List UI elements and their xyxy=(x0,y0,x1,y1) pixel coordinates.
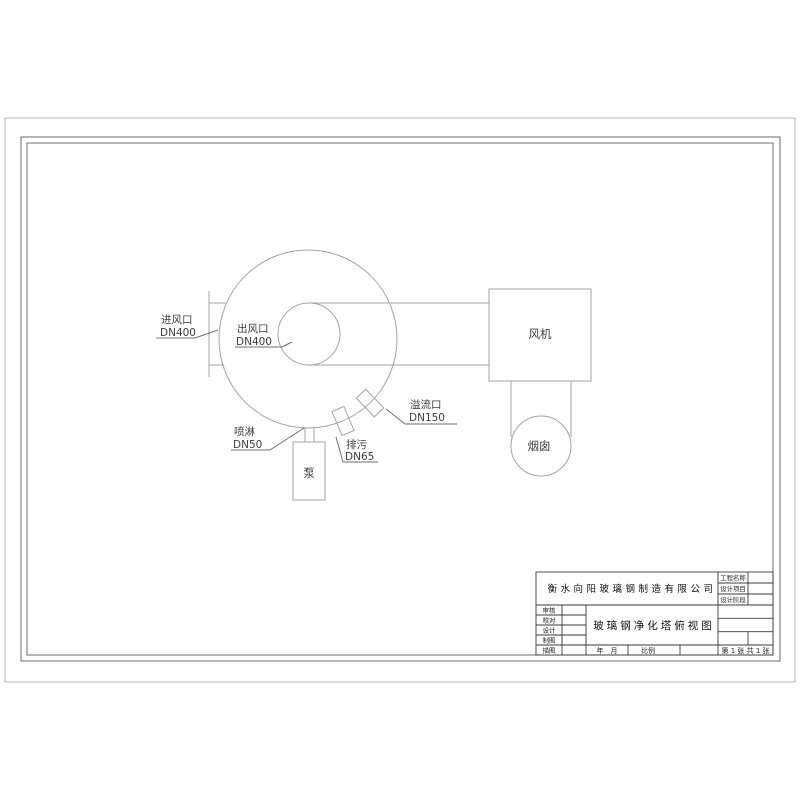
outlet-size-label: DN400 xyxy=(236,336,272,348)
chimney-label: 烟囱 xyxy=(528,439,551,453)
inlet-label: 进风口 xyxy=(161,314,193,326)
spray-size-label: DN50 xyxy=(233,439,262,451)
field-design-item: 设计项目 xyxy=(720,584,746,593)
drain-size-label: DN65 xyxy=(345,451,374,463)
field-proofread: 校对 xyxy=(543,616,556,625)
paper-sheet xyxy=(5,118,795,682)
field-design-stage: 设计阶段 xyxy=(720,595,746,604)
pump-label: 泵 xyxy=(303,466,315,480)
drawing-title: 玻璃钢净化塔俯视图 xyxy=(593,619,715,632)
sheet-count-label: 第 1 张 共 1 张 xyxy=(721,646,769,655)
company-name: 衡水向阳玻璃钢制造有限公司 xyxy=(547,583,716,595)
cad-canvas: 进风口 DN400 出风口 DN400 喷淋 DN50 排污 DN65 溢流口 … xyxy=(0,0,800,800)
field-project-name: 工程名称 xyxy=(720,573,746,582)
scale-label: 比例 xyxy=(641,646,655,655)
field-drafted: 制图 xyxy=(543,636,556,645)
inlet-size-label: DN400 xyxy=(160,327,196,339)
spray-label: 喷淋 xyxy=(234,425,255,438)
field-designed: 设计 xyxy=(543,626,556,635)
drain-label: 排污 xyxy=(346,438,367,451)
date-label: 年 月 xyxy=(597,646,618,655)
outlet-label: 出风口 xyxy=(237,322,269,335)
field-traced: 描图 xyxy=(543,646,556,655)
overflow-size-label: DN150 xyxy=(409,412,445,424)
fan-label: 风机 xyxy=(529,327,552,341)
drawing-viewer: 进风口 DN400 出风口 DN400 喷淋 DN50 排污 DN65 溢流口 … xyxy=(0,0,800,800)
field-reviewed: 审核 xyxy=(543,606,556,615)
overflow-label: 溢流口 xyxy=(410,398,442,411)
